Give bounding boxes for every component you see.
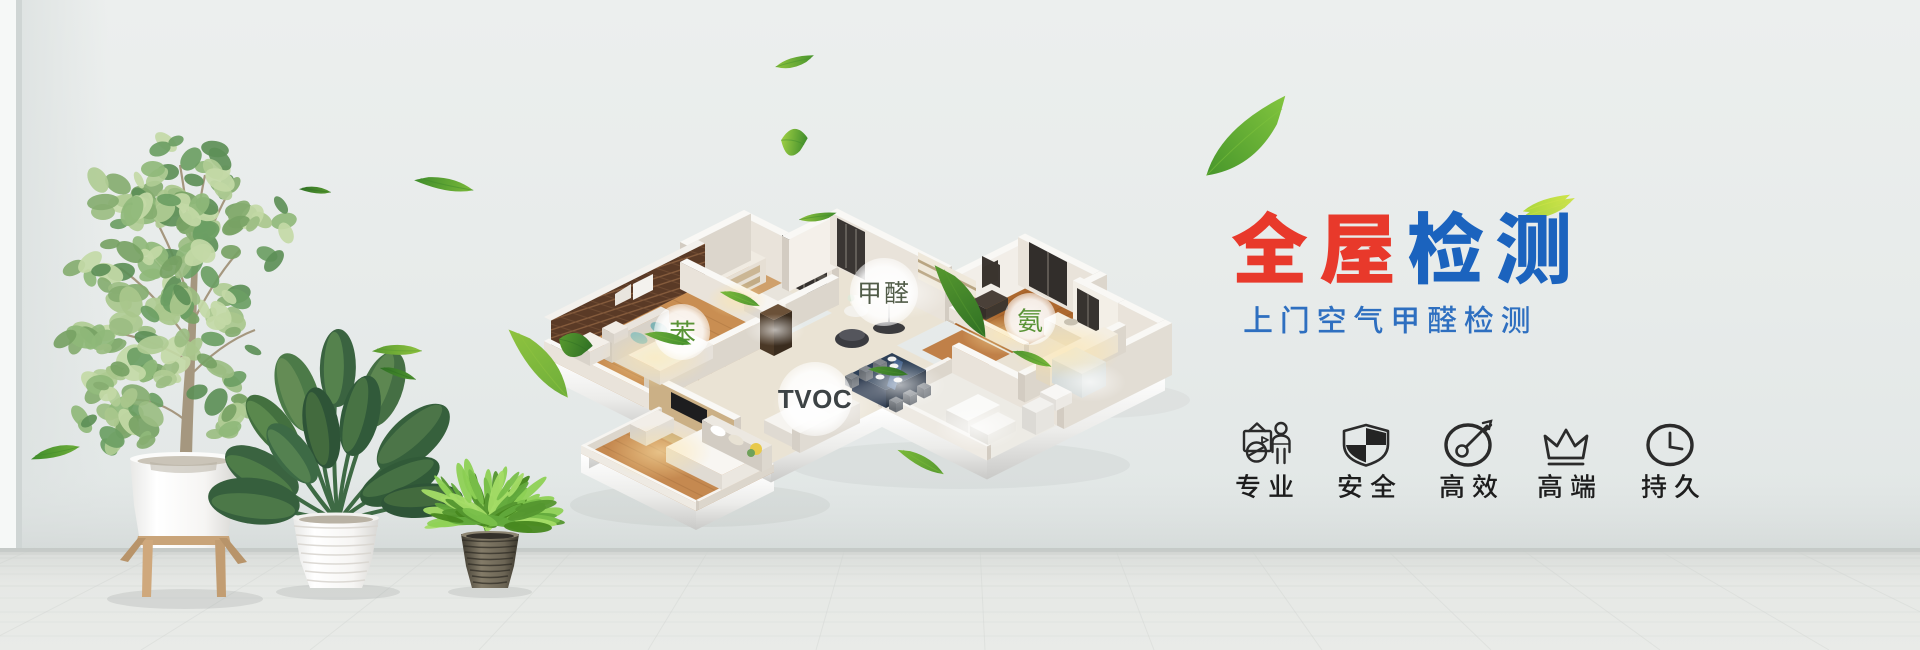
svg-text:TVOC: TVOC xyxy=(778,384,852,414)
